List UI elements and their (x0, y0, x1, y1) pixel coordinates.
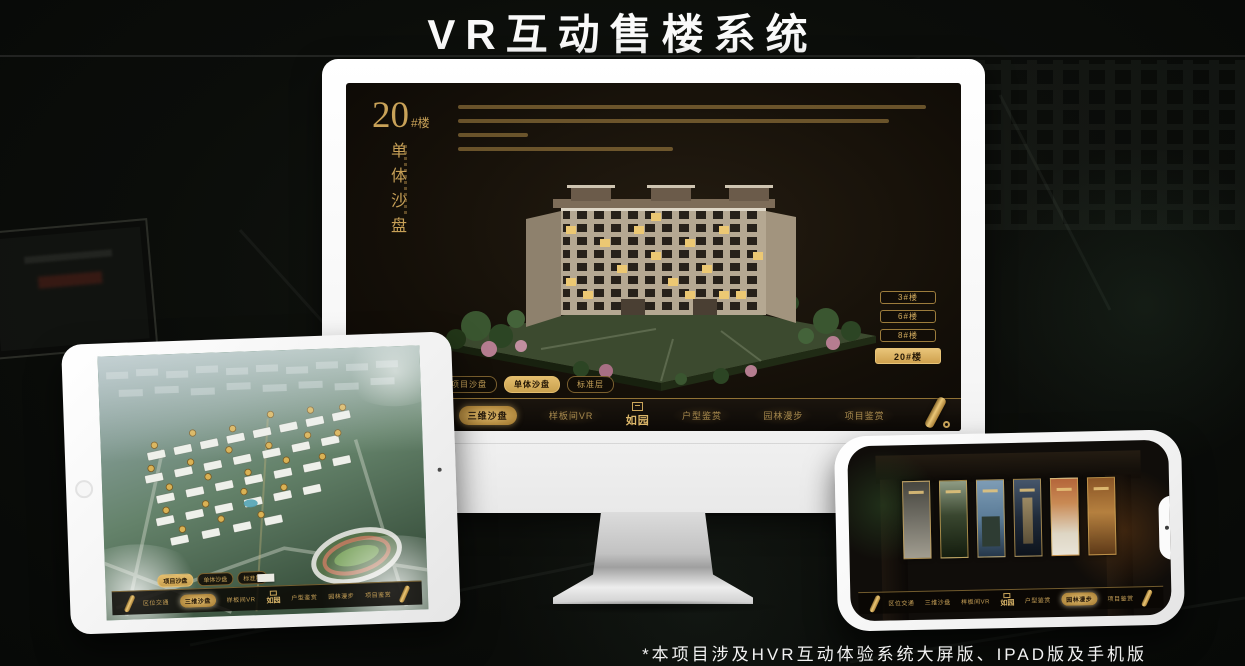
logo-text: 如园 (1000, 598, 1014, 608)
nav-item-showroom-vr[interactable]: 样板间VR (227, 594, 256, 604)
floor-button-20[interactable]: 20#楼 (875, 348, 941, 364)
scene-panel-strip (848, 476, 1171, 561)
scroll-icon[interactable] (921, 398, 951, 428)
tab-single-sandbox[interactable]: 单体沙盘 (197, 572, 233, 586)
scene-panel-interior-sketch[interactable] (902, 481, 932, 560)
scene-panel-garden[interactable] (939, 480, 969, 559)
building-number: 20 (372, 95, 409, 136)
camera-icon (1165, 525, 1169, 529)
floor-button-3[interactable]: 3#楼 (880, 291, 936, 304)
nav-item-location[interactable]: 区位交通 (143, 597, 169, 607)
phone-screen: 区位交通 三维沙盘 样板间VR 如园 户型鉴赏 园林漫步 项目鉴赏 (847, 440, 1172, 622)
scene-panel-warm-interior[interactable] (1087, 477, 1117, 556)
tablet-device: 项目沙盘 单体沙盘 标准层 区位交通 三维沙盘 样板间VR 如园 户型鉴赏 园林… (61, 331, 461, 634)
scroll-icon-left[interactable] (869, 594, 881, 612)
scroll-icon-right[interactable] (1140, 588, 1152, 606)
nav-item-project-view[interactable]: 项目鉴赏 (365, 590, 391, 600)
home-button[interactable] (75, 480, 94, 499)
floor-button-8[interactable]: 8#楼 (880, 329, 936, 342)
nav-item-showroom-vr[interactable]: 样板间VR (961, 596, 990, 606)
scroll-icon-right[interactable] (399, 584, 411, 602)
nav-item-floorplan[interactable]: 户型鉴赏 (291, 592, 317, 602)
poster: VR互动售楼系统 20#楼 单体沙盘 (0, 0, 1245, 666)
nav-item-3d-sandbox[interactable]: 三维沙盘 (180, 594, 216, 608)
logo-text: 如园 (626, 412, 650, 428)
logo-text: 如园 (266, 595, 280, 605)
phone-device: 区位交通 三维沙盘 样板间VR 如园 户型鉴赏 园林漫步 项目鉴赏 (834, 429, 1185, 631)
nav-item-3d-sandbox[interactable]: 三维沙盘 (925, 597, 951, 607)
tablet-screen: 项目沙盘 单体沙盘 标准层 区位交通 三维沙盘 样板间VR 如园 户型鉴赏 园林… (97, 345, 428, 620)
nav-item-floorplan[interactable]: 户型鉴赏 (673, 406, 731, 425)
phone-notch (1158, 495, 1172, 559)
nav-item-garden-walk[interactable]: 园林漫步 (754, 406, 812, 425)
logo-seal-icon (632, 402, 643, 411)
brand-logo: 如园 (266, 590, 281, 605)
nav-item-garden-walk[interactable]: 园林漫步 (328, 591, 354, 601)
camera-icon (438, 468, 442, 472)
scene-panel-dusk-building[interactable] (976, 479, 1006, 558)
scroll-icon-left[interactable] (124, 594, 136, 612)
tab-single-sandbox[interactable]: 单体沙盘 (504, 376, 560, 393)
nav-item-showroom-vr[interactable]: 样板间VR (540, 406, 603, 425)
nav-item-3d-sandbox[interactable]: 三维沙盘 (459, 406, 517, 425)
building-number-suffix: #楼 (411, 116, 430, 130)
nav-item-project-view[interactable]: 项目鉴赏 (836, 406, 894, 425)
building-subtitle-en (404, 145, 407, 215)
floor-button-group: 3#楼 6#楼 8#楼 20#楼 (875, 291, 941, 364)
tab-project-sandbox[interactable]: 项目沙盘 (157, 573, 193, 587)
nav-item-project-view[interactable]: 项目鉴赏 (1108, 593, 1134, 603)
tab-standard-floor[interactable]: 标准层 (567, 376, 614, 393)
brand-logo: 如园 (626, 402, 650, 428)
monitor-shadow (520, 600, 786, 614)
callout-tag (257, 574, 274, 583)
nav-item-location[interactable]: 区位交通 (888, 598, 914, 608)
title-divider (0, 55, 1245, 57)
page-title: VR互动售楼系统 (0, 1, 1245, 62)
brand-logo: 如园 (1000, 593, 1014, 608)
scene-panel-autumn[interactable] (1050, 478, 1080, 557)
building-render[interactable] (421, 131, 891, 391)
nav-item-floorplan[interactable]: 户型鉴赏 (1025, 595, 1051, 605)
sandbox-tabs: 项目沙盘 单体沙盘 标准层 (441, 376, 614, 393)
nav-item-garden-walk[interactable]: 园林漫步 (1061, 592, 1097, 606)
footnote: *本项目涉及HVR互动体验系统大屏版、IPAD版及手机版 (642, 640, 1147, 665)
scene-panel-tower[interactable] (1013, 478, 1043, 557)
floor-button-6[interactable]: 6#楼 (880, 310, 936, 323)
